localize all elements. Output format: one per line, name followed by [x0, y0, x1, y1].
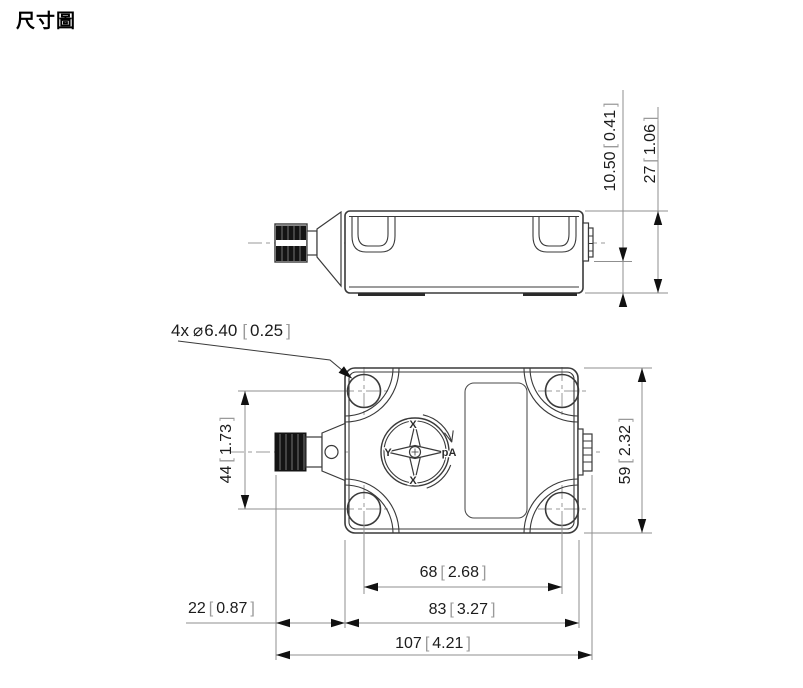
connector-cone: [317, 212, 341, 286]
arrowhead: [345, 619, 359, 627]
plan-right-connector-plate: [578, 429, 583, 475]
arrowhead: [654, 211, 662, 225]
axis-rosette-icon: X Y X Aq: [381, 415, 456, 488]
arrowhead: [638, 368, 646, 382]
dim-housing-width: 83[3.27]: [429, 601, 496, 618]
side-dimension-lines: [623, 90, 658, 307]
arrowhead: [578, 651, 592, 659]
dimension-drawing-page: 尺寸圖: [0, 0, 803, 688]
arrowhead: [276, 619, 290, 627]
corner-pad-br-outer: [524, 479, 578, 533]
dim-housing-thickness: 27[1.06]: [642, 117, 659, 184]
dim-connector-offset-height: 10.50[0.41]: [602, 102, 619, 191]
connector-knurl-band-bottom: [277, 247, 306, 261]
axis-label-left: Y: [384, 447, 392, 459]
hole-callout: 4x⌀6.40[0.25]: [171, 321, 355, 382]
side-view-dimensions: 10.50[0.41] 27[1.06]: [585, 90, 668, 307]
dim-hole-pitch-vertical: 44[1.73]: [218, 417, 235, 484]
arrowhead: [638, 519, 646, 533]
hole-centerlines: [340, 367, 586, 533]
technical-drawing-canvas: 10.50[0.41] 27[1.06]: [0, 0, 803, 688]
side-connector-m12: [275, 212, 341, 286]
arrowhead: [619, 293, 627, 307]
plan-view: X Y X Aq 4x⌀6.40[0.25]: [171, 321, 652, 660]
arrowhead: [548, 583, 562, 591]
side-right-connector-plate: [583, 223, 589, 261]
arrowhead: [565, 619, 579, 627]
side-view: 10.50[0.41] 27[1.06]: [248, 90, 668, 307]
arrowhead: [241, 495, 249, 509]
plan-right-connector-body: [583, 434, 592, 471]
axis-label-mirrored: Aq: [442, 447, 457, 459]
arrowhead: [331, 619, 345, 627]
arrowhead: [276, 651, 290, 659]
plan-view-dimensions: 44[1.73] 59[2.32] 68[2.68] 22[0.87] 83[3…: [186, 368, 652, 660]
dim-housing-height: 59[2.32]: [617, 418, 634, 485]
arrowhead: [654, 279, 662, 293]
axis-label-top: X: [409, 419, 417, 431]
side-right-connector-ribs-body: [589, 228, 594, 257]
axis-label-bottom: X: [409, 475, 417, 487]
plan-connector-neck: [306, 437, 322, 467]
hole-callout-label: 4x⌀6.40[0.25]: [171, 321, 291, 340]
plan-right-connector: [578, 429, 592, 475]
side-housing: [345, 211, 593, 295]
dim-connector-length: 22[0.87]: [188, 600, 255, 617]
dim-hole-pitch-horizontal: 68[2.68]: [420, 564, 487, 581]
plan-housing: [345, 368, 579, 533]
connector-neck: [307, 231, 317, 255]
arrowhead: [619, 248, 627, 262]
arrowhead: [364, 583, 378, 591]
plan-connector-m12: [275, 424, 345, 481]
callout-leader-line: [178, 341, 352, 378]
dim-overall-length: 107[4.21]: [395, 635, 471, 652]
mount-groove-right-inner: [539, 216, 569, 246]
label-plate: [465, 383, 527, 518]
mount-groove-left-inner: [358, 216, 388, 246]
plan-flange-hole: [325, 446, 338, 459]
arrowhead: [241, 391, 249, 405]
connector-knurl-band-top: [277, 226, 306, 240]
corner-pad-tr-inner: [530, 368, 578, 416]
corner-pad-bl-outer: [345, 479, 399, 533]
